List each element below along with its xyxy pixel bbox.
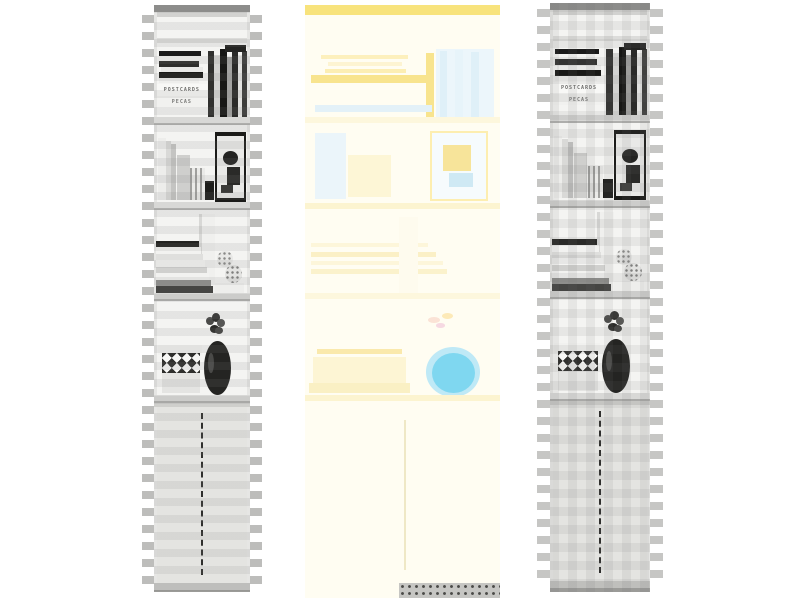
side-wall-right	[247, 12, 250, 592]
ghost-hbook-1	[321, 55, 409, 59]
shelf-board-2-edge	[550, 206, 650, 208]
ghost-frame-art-1	[443, 145, 470, 171]
stacked-book-8	[552, 284, 611, 291]
stacked-book-4	[156, 260, 205, 267]
floor-shadow	[550, 588, 650, 592]
vbook-7	[242, 51, 247, 117]
vbook-1	[606, 49, 613, 115]
bookcase-photo-grayscale-right: POSTCARDSPECAS	[550, 3, 650, 592]
ghost-blue-vstrip-2	[455, 50, 463, 117]
dark-ornament	[603, 179, 613, 198]
ghost-blue-hstrip	[315, 105, 432, 112]
door-gap-dashed-line	[599, 411, 601, 573]
cyan-vase-blob	[432, 353, 475, 393]
basket-base	[558, 371, 598, 391]
shelf1-top-box	[624, 43, 646, 50]
wire-rack	[588, 166, 603, 198]
vase-highlight	[208, 353, 214, 373]
door-gap-dashed-line	[201, 413, 203, 575]
top-bar	[550, 3, 650, 10]
stacked-book-8	[156, 286, 213, 293]
ghost-flower-1	[428, 317, 440, 323]
hbook-6	[159, 78, 199, 83]
vase-highlight	[606, 351, 612, 371]
basket-base	[162, 373, 200, 393]
shelf-board-2-edge	[154, 208, 250, 210]
stacked-book-6	[552, 271, 607, 278]
ghost-frame-art-2	[449, 173, 472, 187]
postcards-box: POSTCARDS	[157, 84, 207, 96]
yellow-top-band	[305, 5, 500, 15]
shelf-board-3-edge	[550, 297, 650, 299]
flower-3	[217, 319, 225, 327]
ghost-door-gap-line	[404, 420, 405, 570]
frame-art-blob-2	[626, 165, 640, 183]
shelf-board-3-edge	[154, 299, 250, 301]
ghost-basket-base	[309, 383, 410, 393]
folder-3	[171, 144, 176, 200]
vbook-3	[220, 49, 227, 117]
bookcase-photo-grayscale-left: POSTCARDSPECAS	[154, 5, 250, 592]
ghost-stack-4	[311, 269, 448, 274]
ghost-yellow-band	[311, 75, 432, 83]
cornice-shadow	[154, 12, 250, 17]
frame-art-blob-3	[620, 183, 632, 191]
vbook-7	[642, 49, 647, 115]
wire-rack	[190, 168, 204, 200]
dark-ornament	[205, 181, 215, 200]
ghost-basket-rim	[317, 349, 403, 354]
photo-canvas: POSTCARDSPECAS POSTCARDSPECAS	[0, 0, 800, 600]
ghost-shelf-board-1	[305, 117, 500, 123]
ghost-shelf-board-2	[305, 203, 500, 209]
vbook-1	[208, 51, 215, 117]
top-bar	[154, 5, 250, 12]
shelf-board-1-edge	[550, 121, 650, 123]
stacked-book-2	[156, 247, 201, 254]
white-stack	[614, 281, 644, 291]
pecas-box: PECAS	[553, 94, 605, 105]
stacked-book-4	[552, 258, 603, 265]
pecas-box: PECAS	[157, 96, 207, 107]
folder-1	[554, 136, 562, 198]
patterned-ball-2	[624, 263, 642, 281]
ghost-basket-body	[313, 357, 407, 383]
stacked-book-2	[552, 245, 599, 252]
floor-shadow	[154, 590, 250, 592]
hbook-6	[555, 76, 597, 81]
ghost-flower-2	[442, 313, 454, 319]
ghost-mid-shape	[348, 155, 391, 197]
bottom-dotted-strip	[399, 583, 500, 598]
side-wall-right	[647, 10, 650, 590]
basket-triangle-band	[558, 351, 598, 371]
basket-triangle-band	[162, 353, 200, 373]
stacked-book-6	[156, 273, 209, 280]
folder-1	[158, 138, 166, 200]
folder-3	[568, 142, 573, 198]
ghost-shelf-board-3	[305, 293, 500, 299]
top-board	[550, 36, 650, 41]
ghost-stack-3	[311, 261, 444, 265]
frame-art-blob-1	[622, 149, 638, 163]
cornice-shadow	[550, 10, 650, 15]
frame-art-blob-2	[227, 167, 240, 185]
ghost-hbook-2	[328, 62, 402, 66]
flower-5	[614, 325, 622, 332]
ghost-blue-vstrip-1	[440, 51, 448, 117]
ghost-hbook-3	[325, 69, 407, 73]
ghost-shelf-board-4	[305, 395, 500, 401]
ghost-cylinder	[399, 217, 419, 293]
shelf1-top-box	[225, 45, 246, 52]
flower-3	[616, 317, 624, 325]
bookcase-photo-faded-center	[305, 5, 500, 598]
shelf-board-1-edge	[154, 123, 250, 125]
postcards-box: POSTCARDS	[553, 82, 605, 94]
white-stack	[215, 283, 244, 293]
small-frame	[177, 155, 189, 200]
vbook-3	[619, 47, 626, 115]
ghost-frame-left	[315, 133, 346, 199]
small-frame	[574, 153, 587, 198]
frame-art-blob-3	[221, 185, 233, 193]
ghost-blue-vstrip-3	[471, 52, 479, 117]
top-board	[154, 38, 250, 43]
